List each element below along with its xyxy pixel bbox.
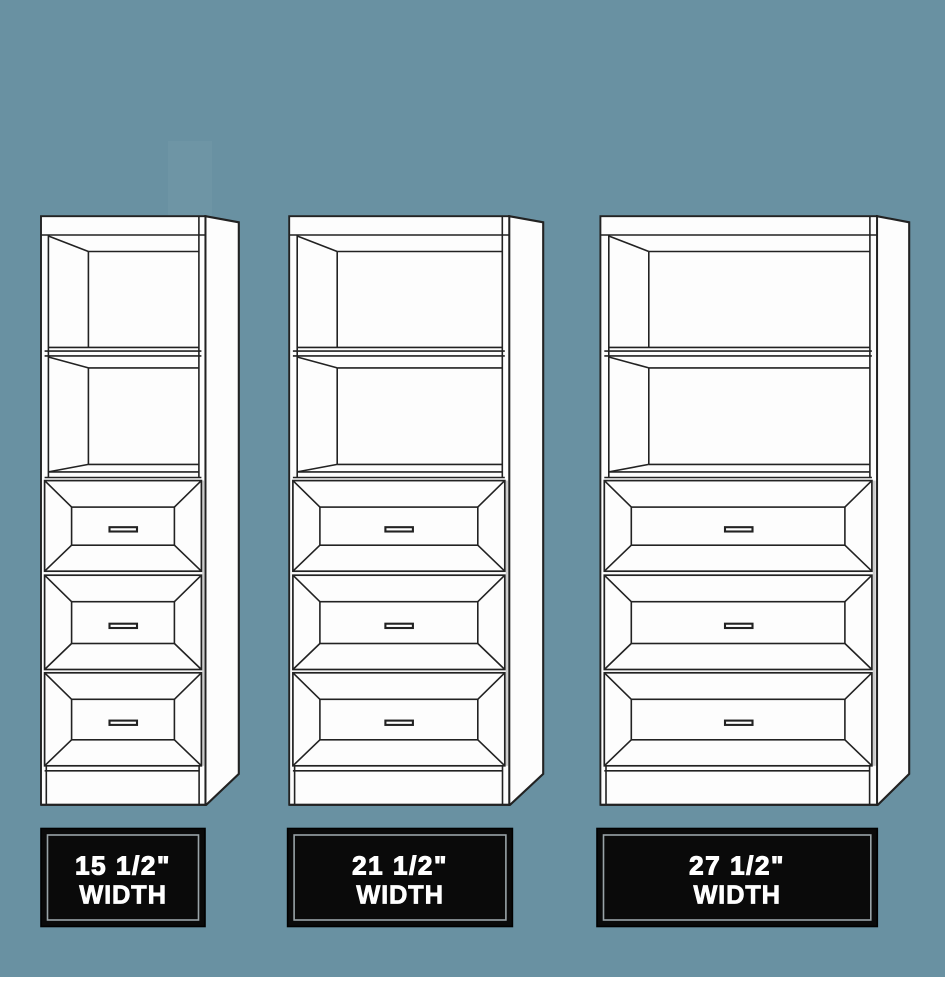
svg-text:27 1/2": 27 1/2" bbox=[689, 851, 785, 881]
svg-text:WIDTH: WIDTH bbox=[79, 882, 167, 910]
svg-text:WIDTH: WIDTH bbox=[693, 882, 781, 910]
svg-text:21 1/2": 21 1/2" bbox=[352, 851, 448, 881]
svg-text:WIDTH: WIDTH bbox=[356, 882, 444, 910]
svg-text:15 1/2": 15 1/2" bbox=[75, 851, 171, 881]
